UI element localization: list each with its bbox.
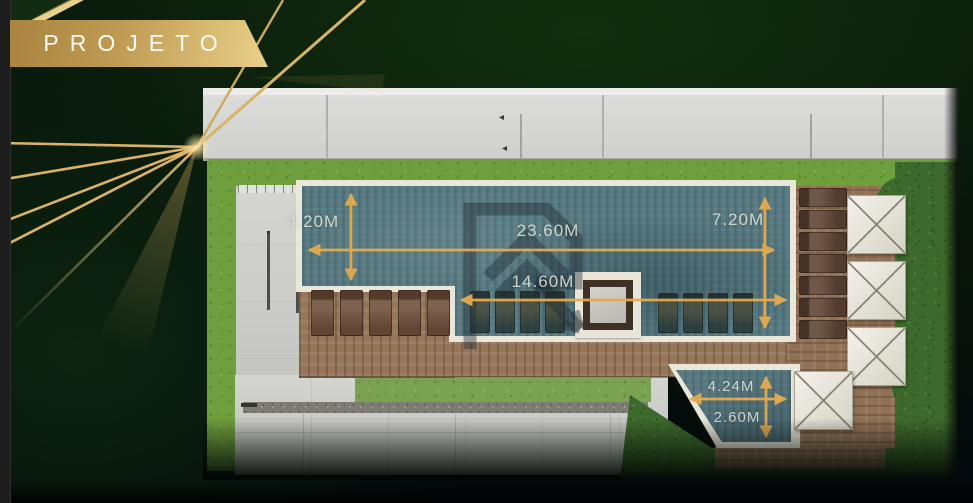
gold-lines-decoration [0,0,973,503]
projeto-slide: 4.20M 23.60M 7.20M 14.60M 4.24M 2.60M [0,0,973,503]
bottom-vignette [0,480,973,503]
section-title: PROJETO [33,30,228,57]
left-frame-bar [0,0,11,503]
section-banner: PROJETO [10,20,268,67]
